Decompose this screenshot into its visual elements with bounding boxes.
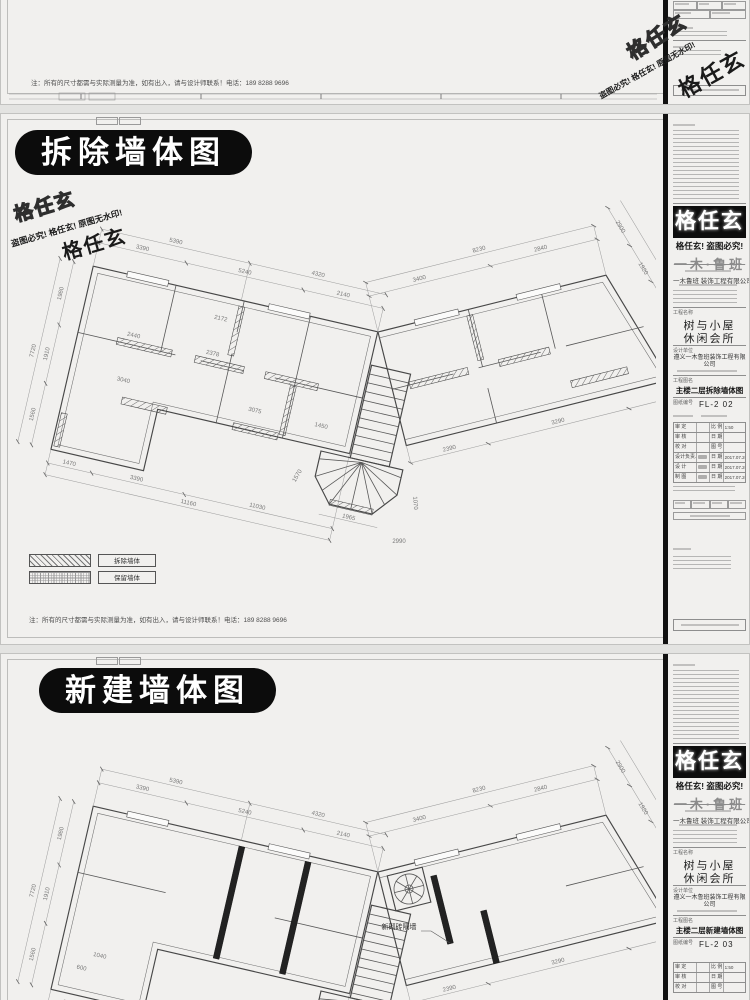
demolish-wall-hatch [409, 367, 469, 388]
drawing-no-row: 图纸编号 FL-2 02 [673, 400, 746, 409]
cell [697, 1, 721, 10]
dim-label: 1560 [29, 947, 38, 962]
dim-label: 2900 [614, 220, 626, 235]
new-wall [481, 910, 500, 964]
row-label: 校 对 [674, 443, 697, 452]
new-wall [279, 861, 311, 974]
titleblock: 格任玄 格任玄! 盗图必究! 一木·鲁班 一木鲁班 装饰工程有限公司 工程名称 … [663, 114, 750, 644]
illegible-label [673, 548, 691, 550]
drawing-name: 主楼二层拆除墙体图 [673, 385, 746, 396]
illegible-text [675, 3, 689, 5]
row-sig [697, 963, 710, 972]
dim-label: 2390 [442, 445, 457, 454]
row-label: 校 对 [674, 983, 697, 992]
sheet-note: 注：所有的尺寸都需与实际测量为准，如有出入，请与设计师联系！电话：189 828… [29, 614, 287, 624]
inner-wall-line [58, 273, 370, 507]
demolish-wall-hatch [279, 386, 296, 436]
right-wing: 3400 2840 8230 2390 3290 2900 1920 2060 … [359, 191, 656, 465]
row-value [724, 983, 745, 992]
titleblock-divider-bar [663, 654, 668, 1000]
dim-label: 3290 [551, 957, 566, 966]
row-label: 审 定 [674, 423, 697, 432]
row-sig [697, 453, 710, 462]
divider [673, 306, 746, 308]
logo-subtext [685, 270, 731, 272]
titleblock-cells [673, 1, 746, 19]
dim-label: 11030 [249, 502, 267, 512]
signature-table: 审 定比 例1:50 审 核日 期 校 对图 号 [673, 962, 746, 993]
row-rlabel: 日 期 [710, 473, 724, 482]
sidebar-watermark-claim: 格任玄! 盗图必究! [673, 780, 746, 792]
demolish-wall-hatch [329, 499, 373, 515]
dim-label: 7720 [29, 883, 38, 898]
sheet-new-wall-plan[interactable]: 新建墙体图 5390 4320 3390 5240 [0, 653, 750, 1000]
demolish-wall-hatch [194, 355, 244, 373]
divider [673, 936, 746, 938]
dimension-ticks [10, 759, 389, 1000]
signature-scribble [698, 465, 707, 469]
drawing-no-row: 图纸编号 FL-2 03 [673, 940, 746, 949]
window [414, 309, 459, 326]
window [268, 304, 310, 319]
extra-no-row [673, 413, 746, 417]
frame-tick-box [96, 657, 118, 665]
cell [673, 500, 691, 509]
dim-label: 8230 [472, 785, 487, 794]
demolish-wall-hatch [498, 347, 550, 366]
divider [673, 884, 746, 886]
company-english [679, 824, 737, 826]
ruler-lines [9, 94, 657, 99]
legend-label: 保留墙体 [98, 571, 156, 584]
divider [673, 846, 746, 848]
dim-label: 8230 [472, 245, 487, 254]
divider [673, 374, 746, 376]
discipline-cells [673, 500, 746, 509]
drawing-no: FL-2 03 [699, 940, 734, 949]
row-sig [697, 423, 710, 432]
row-sig [697, 983, 710, 992]
annotation-text: 新砌砖隔墙 [382, 922, 417, 931]
dim-label: 1920 [637, 262, 649, 277]
row-value: 2017.07.26 [724, 453, 745, 462]
sidebar-watermark-claim: 格任玄! 盗图必究! [673, 240, 746, 252]
window [127, 271, 169, 286]
sidebar-watermark-band: 格任玄 [673, 746, 746, 778]
window [516, 824, 561, 841]
new-wall [431, 875, 454, 944]
row-rlabel: 日 期 [710, 453, 724, 462]
table-row: 审 定比 例1:50 [674, 423, 745, 433]
outer-walls [378, 806, 656, 985]
table-row: 校 对图 号 [674, 983, 745, 993]
contact-lines [673, 830, 737, 843]
illegible-text [681, 624, 739, 626]
row-label: 设计负责人 [674, 453, 697, 462]
drawing-name-label: 工程图名 [673, 378, 746, 384]
frame-tick-box [96, 117, 118, 125]
dim-label: 1570 [292, 468, 304, 483]
new-wall [213, 846, 245, 959]
dim-label: 1980 [57, 286, 66, 301]
dim-label: 1560 [29, 407, 38, 422]
window [127, 811, 169, 826]
row-rlabel: 比 例 [710, 963, 724, 972]
row-sig [697, 443, 710, 452]
dim-label: 11160 [180, 499, 197, 509]
legend-row: 保留墙体 [29, 571, 156, 584]
titleblock: 格任玄 格任玄! 盗图必究! 一木·鲁班 一木鲁班 装饰工程有限公司 工程名称 … [663, 654, 750, 1000]
row-label: 设 计 [674, 463, 697, 472]
demolish-wall-hatch [121, 397, 167, 414]
row-rlabel: 图 号 [710, 443, 724, 452]
deepen-design-notes [673, 556, 731, 572]
ornament-spokes [391, 871, 427, 907]
window [414, 849, 459, 866]
row-rlabel: 日 期 [710, 973, 724, 982]
dim-label: 3040 [116, 376, 131, 385]
illegible-text [693, 502, 705, 504]
table-row: 校 对图 号 [674, 443, 745, 453]
sheet-note: 注：所有的尺寸都需与实际测量为准，如有出入，请与设计师联系！电话：189 828… [31, 77, 289, 87]
project-label: 工程名称 [673, 850, 746, 856]
sheet-previous-partial[interactable]: 注：所有的尺寸都需与实际测量为准，如有出入，请与设计师联系！电话：189 828… [0, 0, 750, 105]
design-unit-name: 遵义一木鲁班装饰工程有限公司 [673, 895, 746, 909]
sheet-demolition-plan[interactable]: 拆除墙体图 [0, 113, 750, 645]
dim-label: 2390 [442, 985, 457, 994]
dim-label: 1910 [43, 346, 52, 361]
floor-plan-new-walls: 5390 4320 3390 5240 2140 1980 1910 1560 … [1, 679, 656, 1000]
dim-label: 2840 [534, 244, 549, 253]
row-rlabel: 比 例 [710, 423, 724, 432]
sidebar-watermark-band: 格任玄 [673, 206, 746, 238]
signature-table: 审 定比 例1:50 审 核日 期 校 对图 号 设计负责人日 期2017.07… [673, 422, 746, 483]
contact-lines [673, 290, 737, 303]
window [516, 284, 561, 301]
logo-subtext [685, 810, 731, 812]
drawing-name-label: 工程图名 [673, 918, 746, 924]
demolish-wall-hatch [467, 315, 484, 361]
right-wing: 3400 2840 8230 2390 3290 2900 1920 2060 … [359, 731, 656, 1000]
dim-label: 1040 [92, 952, 107, 961]
legend-row: 拆除墙体 [29, 554, 156, 567]
signature-scribble [698, 475, 707, 479]
row-sig [697, 473, 710, 482]
outer-walls [51, 806, 378, 1000]
illegible-notes [673, 130, 739, 200]
table-row: 设 计日 期2017.07.26 [674, 463, 745, 473]
illegible-label [673, 415, 693, 417]
row-value [724, 443, 745, 452]
dim-label: 3400 [412, 815, 427, 824]
table-row: 审 核日 期 [674, 433, 745, 443]
row-label: 制 图 [674, 473, 697, 482]
divider [673, 396, 746, 398]
illegible-text [712, 502, 722, 504]
dim-label: 3400 [412, 275, 427, 284]
cell [710, 10, 747, 19]
drawing-no-label: 图纸编号 [673, 400, 699, 409]
deepen-design-label [673, 548, 746, 550]
page: 注：所有的尺寸都需与实际测量为准，如有出入，请与设计师联系！电话：189 828… [0, 0, 750, 1000]
illegible-value [701, 415, 727, 417]
row-label: 审 核 [674, 433, 697, 442]
illegible-text [699, 3, 709, 5]
illegible-text [712, 12, 730, 14]
illegible-notes [673, 670, 739, 740]
demolish-wall-hatch [228, 306, 245, 356]
row-value: 2017.07.26 [724, 463, 745, 472]
dim-label: 2378 [205, 350, 220, 359]
illegible-text [690, 515, 730, 517]
dim-label: 3075 [248, 407, 263, 416]
legend-label: 拆除墙体 [98, 554, 156, 567]
dim-label: 1920 [637, 802, 649, 817]
partitions [65, 266, 378, 453]
dimension-lines [12, 221, 386, 540]
row-value: 1:50 [724, 423, 745, 432]
demolish-wall-hatch [232, 423, 278, 440]
drawing-no-label: 图纸编号 [673, 940, 699, 949]
ruler-ticks [81, 94, 561, 99]
dim-label: 1450 [314, 422, 329, 431]
cell [710, 500, 728, 509]
legend: 拆除墙体 保留墙体 [29, 554, 156, 588]
floor-plan-demolition: 5390 4320 3390 5240 2140 1980 1910 1560 … [1, 139, 656, 609]
company-english [679, 284, 737, 286]
design-unit-english [677, 370, 737, 372]
dim-label: 2840 [534, 784, 549, 793]
left-wing: 5390 4320 3390 5240 2140 1980 1910 1560 … [4, 753, 390, 1000]
drawing-no: FL-2 02 [699, 400, 734, 409]
row-rlabel: 图 号 [710, 983, 724, 992]
frame-tick-box [119, 657, 141, 665]
dim-label: 7720 [29, 343, 38, 358]
row-rlabel: 日 期 [710, 463, 724, 472]
dimension-lines [12, 761, 386, 1000]
design-notes-block [673, 124, 746, 204]
dimension-ticks [360, 196, 656, 465]
revision-notes [673, 482, 735, 494]
project-label: 工程名称 [673, 310, 746, 316]
row-sig [697, 973, 710, 982]
cell [728, 500, 746, 509]
illegible-heading [673, 664, 695, 666]
divider [673, 914, 746, 916]
row-sig [697, 433, 710, 442]
sheet-bottom-ruler [1, 85, 661, 105]
design-unit-name: 遵义一木鲁班装饰工程有限公司 [673, 355, 746, 369]
row-value: 2017.07.26 [724, 473, 745, 482]
titleblock-cell-row [673, 1, 746, 10]
row-rlabel: 日 期 [710, 433, 724, 442]
dim-label: 600 [76, 965, 88, 973]
demolish-wall-hatch [571, 367, 629, 388]
dim-label: 3290 [551, 417, 566, 426]
row-sig [697, 463, 710, 472]
table-row: 审 核日 期 [674, 973, 745, 983]
design-unit-english [677, 910, 737, 912]
inner-wall-line [58, 813, 370, 1000]
illegible-text [675, 502, 685, 504]
row-label: 审 核 [674, 973, 697, 982]
left-wing: 5390 4320 3390 5240 2140 1980 1910 1560 … [4, 213, 390, 543]
illegible-text [730, 502, 742, 504]
row-value [724, 433, 745, 442]
ornament-feature [387, 867, 431, 911]
table-row: 审 定比 例1:50 [674, 963, 745, 973]
dim-label: 2990 [392, 539, 406, 545]
partitions [566, 867, 644, 886]
dim-label: 2440 [126, 332, 141, 341]
dim-label: 1070 [411, 496, 418, 510]
row-value: 1:50 [724, 963, 745, 972]
row-value [724, 973, 745, 982]
dimension-lines [361, 191, 656, 463]
window [268, 844, 310, 859]
titleblock-footer [673, 619, 746, 631]
table-row: 设计负责人日 期2017.07.26 [674, 453, 745, 463]
divider [673, 344, 746, 346]
dim-label: 2172 [213, 315, 228, 324]
legend-swatch-demolish-hatch [29, 554, 91, 567]
cell [722, 1, 746, 10]
dim-label: 1910 [43, 886, 52, 901]
signature-scribble [698, 455, 707, 459]
illegible-heading [673, 124, 695, 126]
illegible-text [724, 3, 736, 5]
cell [691, 500, 709, 509]
stair-flight [350, 365, 410, 467]
design-unit-label: 设计单位 [673, 348, 746, 354]
dim-label: 1980 [57, 826, 66, 841]
design-notes-block [673, 664, 746, 744]
design-unit-label: 设计单位 [673, 888, 746, 894]
legend-swatch-keep-hatch [29, 571, 91, 584]
discipline-cell-wide [673, 512, 746, 520]
dim-label: 2900 [614, 760, 626, 775]
row-label: 审 定 [674, 963, 697, 972]
drawing-name: 主楼二层新建墙体图 [673, 925, 746, 936]
demolish-wall-hatch [116, 337, 172, 356]
frame-tick-box [119, 117, 141, 125]
titleblock-divider-bar [663, 114, 668, 644]
